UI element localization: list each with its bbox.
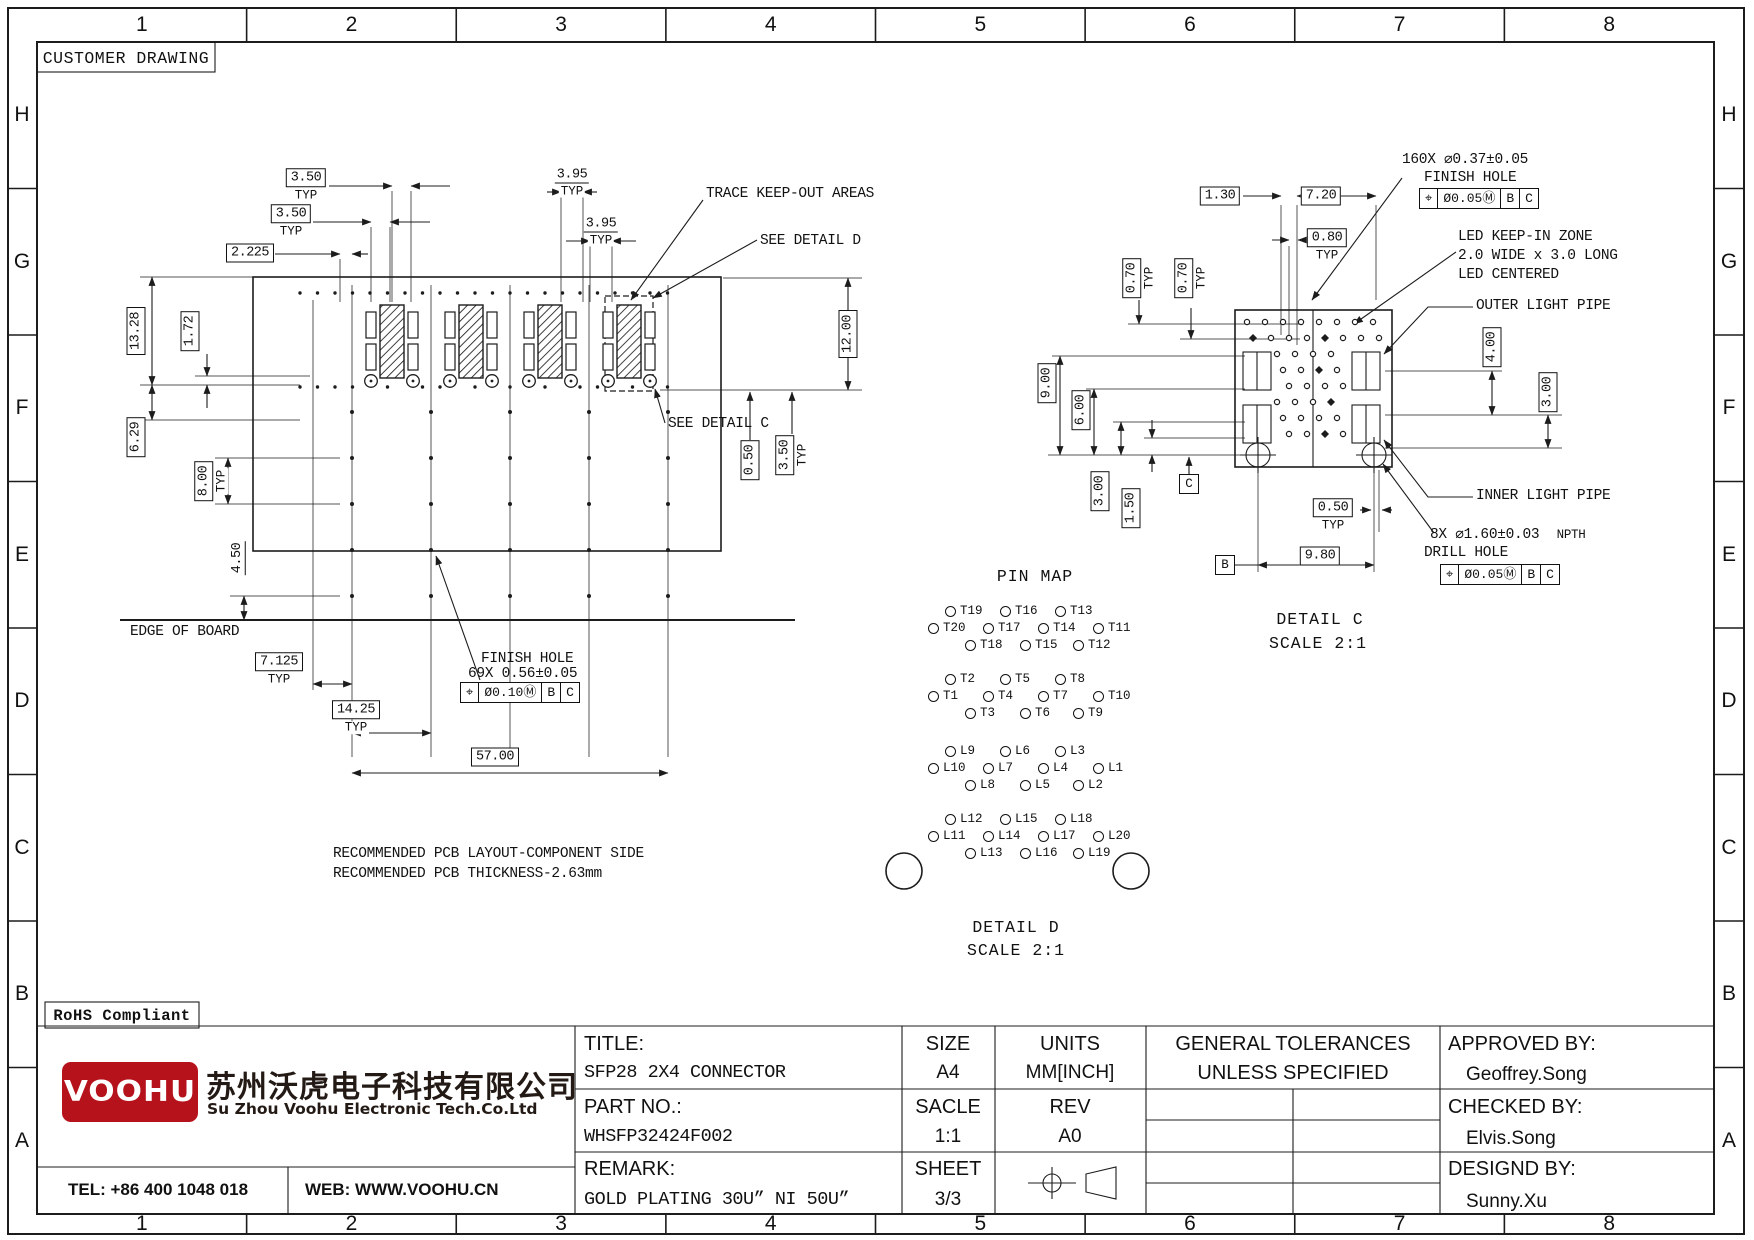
ruler-col-bottom: 8 — [1603, 1212, 1615, 1236]
dim-value: 7.20 — [1301, 187, 1341, 206]
ruler-row-right: D — [1721, 689, 1736, 713]
fcf-cell: B — [541, 683, 560, 702]
pin-hole — [1280, 415, 1285, 420]
pin-hole — [1268, 335, 1273, 340]
pin-label: T17 — [998, 621, 1021, 635]
pin-label: T2 — [960, 672, 975, 686]
pin-label: L2 — [1088, 778, 1103, 792]
pin-label: T13 — [1070, 604, 1093, 618]
dim-value: 6.29 — [127, 417, 146, 457]
pin-T14: T14 — [1038, 621, 1076, 635]
ruler-col-top: 4 — [765, 13, 777, 37]
right-view-dim-label: 7.20 — [1301, 187, 1341, 206]
left-view-dim-label: 7.125TYP — [255, 652, 303, 686]
pin-L13: L13 — [965, 846, 1003, 860]
pin-circle-icon — [1020, 780, 1031, 791]
pin-T18: T18 — [965, 638, 1003, 652]
hole-dot — [666, 291, 669, 294]
left-view-dim-label: 12.00 — [839, 310, 858, 358]
left-view-dim-label: 3.95TYP — [555, 169, 589, 198]
remark-value: GOLD PLATING 30U” NI 50U” — [584, 1189, 849, 1210]
fcf-cell: C — [1540, 565, 1559, 584]
detail-d-scale: SCALE 2:1 — [967, 941, 1065, 960]
hole-dot — [578, 291, 581, 294]
pin-T9: T9 — [1073, 706, 1103, 720]
pin-L7: L7 — [983, 761, 1013, 775]
fcf-cell: B — [1521, 565, 1540, 584]
pin-circle-icon — [1000, 746, 1011, 757]
right-view-dim-label: 1.50 — [1122, 488, 1141, 528]
right-view-dim-label: 1.30 — [1200, 187, 1240, 206]
pin-hole — [1334, 367, 1339, 372]
ruler-col-bottom: 2 — [346, 1212, 358, 1236]
dim-value: 14.25 — [332, 700, 380, 719]
typ-label: TYP — [343, 721, 370, 734]
pin-hole — [1352, 319, 1357, 324]
pin-L10: L10 — [928, 761, 966, 775]
dim-value: 1.72 — [181, 311, 200, 351]
pin-T19: T19 — [945, 604, 983, 618]
hole-dot — [350, 548, 354, 552]
pin-diamond — [1321, 334, 1329, 342]
hole-dot — [631, 385, 634, 388]
left-view-dim-label: 3.50TYP — [775, 435, 809, 475]
hole-dot — [473, 385, 476, 388]
smt-pad — [366, 344, 376, 370]
typ-label: TYP — [796, 442, 809, 469]
pin-label: T7 — [1053, 689, 1068, 703]
pin-hole — [1334, 415, 1339, 420]
left-view-dim-label: 0.50 — [741, 440, 760, 480]
scale-value: 1:1 — [935, 1126, 961, 1148]
position-symbol-icon: ⌖ — [461, 683, 478, 702]
hole-dot — [316, 291, 319, 294]
pin-T1: T1 — [928, 689, 958, 703]
dim-value: 9.00 — [1038, 363, 1057, 403]
hole-dot — [596, 385, 599, 388]
callout-finish_hole: FINISH HOLE — [1424, 170, 1516, 186]
pin-map-title: PIN MAP — [997, 567, 1073, 586]
hole-dot — [333, 291, 336, 294]
pin-hole — [1304, 335, 1309, 340]
hole-dot — [649, 380, 652, 383]
hole-dot — [429, 410, 433, 414]
pin-label: L9 — [960, 744, 975, 758]
pin-hole — [1280, 367, 1285, 372]
pin-label: T8 — [1070, 672, 1085, 686]
pin-circle-icon — [1055, 746, 1066, 757]
voohu-logo: VOOHU — [62, 1062, 198, 1122]
fcf-cell: Ø0.05Ⓜ — [1458, 565, 1521, 584]
pin-hole — [1334, 319, 1339, 324]
ruler-row-right: A — [1722, 1129, 1736, 1153]
pin-hole — [1244, 319, 1249, 324]
hole-dot — [350, 594, 354, 598]
callout-outer: OUTER LIGHT PIPE — [1476, 298, 1610, 314]
hole-dot — [403, 291, 406, 294]
left-view-dim-label: 1.72 — [181, 311, 200, 351]
voohu-logo-text: VOOHU — [64, 1075, 196, 1108]
smt-pad — [603, 344, 613, 370]
rohs-label: RoHS Compliant — [53, 1007, 190, 1025]
hole-dot — [631, 291, 634, 294]
smt-pad — [487, 312, 497, 338]
pin-L15: L15 — [1000, 812, 1038, 826]
hole-dot — [528, 380, 531, 383]
pin-circle-icon — [1073, 640, 1084, 651]
pin-label: L15 — [1015, 812, 1038, 826]
callout-finish_2: 69X 0.56±0.05 — [468, 666, 577, 682]
right-view-dim-label: 0.80TYP — [1307, 228, 1347, 262]
ruler-row-right: B — [1722, 982, 1736, 1006]
pin-hole — [1292, 399, 1297, 404]
pin-label: T16 — [1015, 604, 1038, 618]
ruler-col-top: 5 — [974, 13, 986, 37]
hole-dot — [508, 410, 512, 414]
hole-dot — [578, 385, 581, 388]
pin-hole — [1286, 431, 1291, 436]
pin-L1: L1 — [1093, 761, 1123, 775]
pin-circle-icon — [1038, 691, 1049, 702]
pin-circle-icon — [965, 708, 976, 719]
pin-hole — [1376, 335, 1381, 340]
left-view-dim-label: 4.50 — [231, 541, 246, 575]
pin-diamond — [1321, 430, 1329, 438]
dim-value: 3.50 — [775, 435, 794, 475]
pin-T8: T8 — [1055, 672, 1085, 686]
pin-circle-icon — [1000, 606, 1011, 617]
dim-value: 0.50 — [741, 440, 760, 480]
tel-label: TEL: +86 400 1048 018 — [68, 1180, 248, 1200]
dim-value: 2.225 — [226, 244, 274, 263]
hole-dot — [561, 291, 564, 294]
dim-value: 1.50 — [1122, 488, 1141, 528]
pcb-note: RECOMMENDED PCB LAYOUT-COMPONENT SIDE — [333, 846, 644, 862]
smt-pad — [445, 312, 455, 338]
left-view-dim-label: 14.25TYP — [332, 700, 380, 734]
hole-dot — [587, 548, 591, 552]
pin-L12: L12 — [945, 812, 983, 826]
tolerance-header-1: GENERAL TOLERANCES — [1175, 1033, 1410, 1056]
pcb-note: RECOMMENDED PCB THICKNESS-2.63mm — [333, 866, 602, 882]
pin-hole — [1280, 319, 1285, 324]
scale-label: SACLE — [915, 1096, 981, 1119]
detail-d-title: DETAIL D — [972, 918, 1059, 937]
ruler-row-right: E — [1722, 543, 1736, 567]
pin-circle-icon — [1020, 848, 1031, 859]
hole-dot — [596, 291, 599, 294]
smt-pad — [566, 344, 576, 370]
size-label: SIZE — [926, 1033, 970, 1056]
dim-value: 12.00 — [839, 310, 858, 358]
hole-dot — [386, 291, 389, 294]
pin-label: T5 — [1015, 672, 1030, 686]
drawing-sheet: CUSTOMER DRAWING RoHS Compliant TITLE: S… — [0, 0, 1754, 1240]
pin-circle-icon — [1020, 640, 1031, 651]
hole-dot — [333, 385, 336, 388]
pin-T3: T3 — [965, 706, 995, 720]
callout-detail_c: SEE DETAIL C — [668, 416, 769, 432]
pin-hole — [1310, 351, 1315, 356]
pin-label: L3 — [1070, 744, 1085, 758]
typ-label: TYP — [1314, 249, 1341, 262]
hole-dot — [508, 291, 511, 294]
company-name-en: Su Zhou Voohu Electronic Tech.Co.Ltd — [207, 1100, 538, 1118]
dim-value: 3.95 — [555, 169, 589, 184]
hole-dot — [350, 410, 354, 414]
pin-label: L13 — [980, 846, 1003, 860]
hole-dot — [508, 594, 512, 598]
pin-label: L7 — [998, 761, 1013, 775]
right-view-dim-label: 6.00 — [1072, 390, 1091, 430]
pin-label: T9 — [1088, 706, 1103, 720]
pin-label: L1 — [1108, 761, 1123, 775]
pin-circle-icon — [965, 848, 976, 859]
npth-label: NPTH — [1557, 528, 1586, 542]
pin-label: L6 — [1015, 744, 1030, 758]
trace-keep-out-pad — [380, 305, 404, 378]
ruler-col-top: 7 — [1394, 13, 1406, 37]
pin-circle-icon — [965, 640, 976, 651]
right-view-dim-label: 0.50TYP — [1313, 498, 1353, 532]
pin-L4: L4 — [1038, 761, 1068, 775]
smt-pad — [408, 312, 418, 338]
ruler-row-left: G — [14, 250, 30, 274]
hole-dot — [587, 456, 591, 460]
typ-label: TYP — [588, 234, 615, 247]
pin-L19: L19 — [1073, 846, 1111, 860]
typ-label: TYP — [1195, 265, 1208, 292]
hole-dot — [587, 594, 591, 598]
hole-dot — [587, 502, 591, 506]
pin-circle-icon — [1020, 708, 1031, 719]
ruler-col-bottom: 7 — [1394, 1212, 1406, 1236]
pin-circle-icon — [965, 780, 976, 791]
pin-L9: L9 — [945, 744, 975, 758]
pin-hole — [1340, 431, 1345, 436]
ruler-row-left: B — [15, 982, 29, 1006]
dim-value: 4.00 — [1483, 327, 1502, 367]
detail-c-title: DETAIL C — [1276, 610, 1363, 629]
pin-circle-icon — [945, 814, 956, 825]
hole-dot — [666, 410, 670, 414]
datum-flag-c: C — [1179, 474, 1199, 494]
pin-circle-icon — [1093, 691, 1104, 702]
callout-hole160: 160X ⌀0.37±0.05 — [1402, 151, 1528, 168]
hole-dot — [491, 291, 494, 294]
pin-circle-icon — [928, 831, 939, 842]
pin-circle-icon — [983, 831, 994, 842]
ruler-row-right: F — [1723, 396, 1736, 420]
callout-finish_1: FINISH HOLE — [481, 651, 573, 667]
pin-diamond — [1327, 398, 1335, 406]
hole-dot — [508, 548, 512, 552]
pin-circle-icon — [1073, 780, 1084, 791]
pin-label: L16 — [1035, 846, 1058, 860]
dim-value: 1.30 — [1200, 187, 1240, 206]
smt-pad — [445, 344, 455, 370]
dim-value: 0.70 — [1122, 258, 1141, 298]
ruler-row-left: C — [14, 836, 29, 860]
hole-dot — [412, 380, 415, 383]
pin-label: T15 — [1035, 638, 1058, 652]
left-view-dim-label: 8.00TYP — [194, 461, 228, 501]
pin-circle-icon — [945, 674, 956, 685]
callout-drill2: DRILL HOLE — [1424, 545, 1508, 561]
rev-label: REV — [1049, 1096, 1090, 1119]
pin-L14: L14 — [983, 829, 1021, 843]
hole-dot — [666, 594, 670, 598]
hole-dot — [368, 291, 371, 294]
ruler-col-top: 8 — [1603, 13, 1615, 37]
left-view-dim-label: 6.29 — [127, 417, 146, 457]
pin-diamond — [1249, 334, 1257, 342]
dim-value: 6.00 — [1072, 390, 1091, 430]
pin-label: T6 — [1035, 706, 1050, 720]
callout-trace: TRACE KEEP-OUT AREAS — [706, 186, 874, 202]
pin-label: T3 — [980, 706, 995, 720]
callout-led2: 2.0 WIDE x 3.0 LONG — [1458, 248, 1618, 264]
units-value: MM[INCH] — [1026, 1062, 1115, 1084]
right-view-dim-label: 9.00 — [1038, 363, 1057, 403]
hole-dot — [351, 291, 354, 294]
pin-hole — [1304, 383, 1309, 388]
pin-circle-icon — [1073, 848, 1084, 859]
ruler-col-bottom: 3 — [555, 1212, 567, 1236]
pin-T15: T15 — [1020, 638, 1058, 652]
drill-hole-note-dim: 8X ⌀1.60±0.03 — [1430, 527, 1539, 543]
hole-dot — [298, 385, 301, 388]
hole-dot — [666, 385, 669, 388]
pin-label: L4 — [1053, 761, 1068, 775]
checked-label: CHECKED BY: — [1448, 1096, 1582, 1119]
hole-dot — [350, 456, 354, 460]
datum-flag-b: B — [1215, 555, 1235, 575]
designed-value: Sunny.Xu — [1466, 1191, 1547, 1213]
typ-label: TYP — [1143, 265, 1156, 292]
pin-hole — [1262, 319, 1267, 324]
position-symbol-icon: ⌖ — [1441, 565, 1458, 584]
pin-label: L19 — [1088, 846, 1111, 860]
pin-label: T18 — [980, 638, 1003, 652]
callout-led3: LED CENTERED — [1458, 267, 1559, 283]
pin-hole — [1316, 319, 1321, 324]
pin-hole — [1286, 383, 1291, 388]
pin-label: T14 — [1053, 621, 1076, 635]
dim-value: 9.80 — [1300, 547, 1340, 566]
pin-circle-icon — [928, 623, 939, 634]
pin-hole — [1298, 319, 1303, 324]
trace-keep-out-pad — [459, 305, 483, 378]
dim-value: 8.00 — [194, 461, 213, 501]
hole-dot — [570, 380, 573, 383]
pin-hole — [1286, 335, 1291, 340]
right-view-dim-label: 0.70TYP — [1174, 258, 1208, 298]
ruler-col-bottom: 4 — [765, 1212, 777, 1236]
pin-L18: L18 — [1055, 812, 1093, 826]
smt-pad — [366, 312, 376, 338]
hole-dot — [429, 502, 433, 506]
trace-keep-out-pad — [538, 305, 562, 378]
pin-T6: T6 — [1020, 706, 1050, 720]
left-view-dim-label: 3.50TYP — [271, 204, 311, 238]
sheet-value: 3/3 — [935, 1189, 961, 1211]
left-view-dim-label: 57.00 — [471, 748, 519, 767]
pin-hole — [1298, 367, 1303, 372]
callout-detail_d: SEE DETAIL D — [760, 233, 861, 249]
pin-circle-icon — [1038, 623, 1049, 634]
pin-L16: L16 — [1020, 846, 1058, 860]
hole-dot — [429, 456, 433, 460]
pin-L2: L2 — [1073, 778, 1103, 792]
pin-hole — [1298, 415, 1303, 420]
callout-led1: LED KEEP-IN ZONE — [1458, 229, 1592, 245]
pin-hole — [1316, 415, 1321, 420]
pin-circle-icon — [1038, 831, 1049, 842]
hole-dot — [526, 291, 529, 294]
pin-hole — [1304, 431, 1309, 436]
pin-L8: L8 — [965, 778, 995, 792]
right-view-dim-label: 0.70TYP — [1122, 258, 1156, 298]
right-view-dim-label: 3.00 — [1539, 372, 1558, 412]
pin-label: L20 — [1108, 829, 1131, 843]
ruler-row-left: E — [15, 543, 29, 567]
dim-value: 0.70 — [1174, 258, 1193, 298]
ruler-col-top: 3 — [555, 13, 567, 37]
hole-dot — [350, 502, 354, 506]
ruler-col-bottom: 1 — [136, 1212, 148, 1236]
typ-label: TYP — [293, 189, 320, 202]
pin-circle-icon — [945, 746, 956, 757]
typ-label: TYP — [1320, 519, 1347, 532]
hole-dot — [543, 385, 546, 388]
units-label: UNITS — [1040, 1033, 1100, 1056]
pin-circle-icon — [983, 763, 994, 774]
pin-hole — [1274, 351, 1279, 356]
pin-T10: T10 — [1093, 689, 1131, 703]
pin-L6: L6 — [1000, 744, 1030, 758]
pin-circle-icon — [1093, 763, 1104, 774]
typ-label: TYP — [278, 225, 305, 238]
hole-dot — [508, 502, 512, 506]
right-view-dim-label: 3.00 — [1091, 471, 1110, 511]
ruler-row-left: A — [15, 1129, 29, 1153]
pin-label: T4 — [998, 689, 1013, 703]
ruler-row-left: D — [14, 689, 29, 713]
title-label: TITLE: — [584, 1033, 644, 1056]
web-label: WEB: WWW.VOOHU.CN — [305, 1180, 499, 1200]
dim-value: 0.50 — [1313, 498, 1353, 517]
ruler-col-top: 6 — [1184, 13, 1196, 37]
hole-dot — [421, 385, 424, 388]
smt-pad — [487, 344, 497, 370]
pin-hole — [1340, 383, 1345, 388]
hole-dot — [607, 380, 610, 383]
hole-dot — [491, 380, 494, 383]
typ-label: TYP — [266, 673, 293, 686]
hole-dot — [370, 380, 373, 383]
pin-label: T11 — [1108, 621, 1131, 635]
pin-L3: L3 — [1055, 744, 1085, 758]
smt-pad — [566, 312, 576, 338]
pin-T2: T2 — [945, 672, 975, 686]
fcf-cell: B — [1500, 189, 1519, 208]
fcf-finish-hole-left: ⌖Ø0.10ⓂBC — [460, 682, 580, 703]
remark-label: REMARK: — [584, 1158, 675, 1181]
pin-circle-icon — [945, 606, 956, 617]
hole-dot — [456, 291, 459, 294]
hole-dot — [421, 291, 424, 294]
